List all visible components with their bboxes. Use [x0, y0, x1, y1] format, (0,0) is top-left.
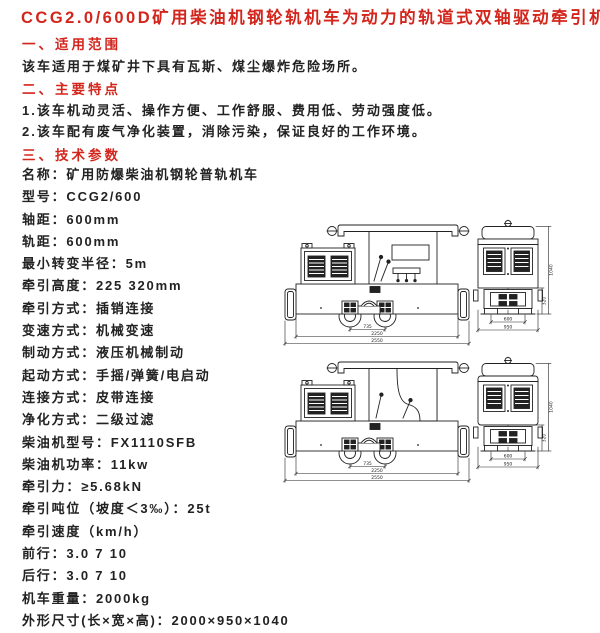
spec-list: 名称：矿用防爆柴油机钢轮普轨机车 型号：CCG2/600 轴距：600mm 轨距…	[22, 164, 290, 632]
dim-label-frame-length: 2250	[371, 468, 383, 474]
dim-label-gauge: 600	[504, 316, 513, 322]
section-heading-scope: 一、适用范围	[22, 33, 121, 53]
dim-label-height: 1040	[549, 264, 555, 276]
spec-row: 最小转变半径：5m	[22, 253, 290, 275]
side-view: 735 2250 2550	[284, 225, 471, 346]
spec-row: 起动方式：手摇/弹簧/电启动	[22, 365, 290, 387]
spec-row: 名称：矿用防爆柴油机钢轮普轨机车	[22, 164, 290, 186]
section-heading-specs: 三、技术参数	[22, 144, 121, 164]
dim-label-wheelbase: 735	[363, 324, 372, 330]
spec-row: 柴油机型号：FX1110SFB	[22, 432, 290, 454]
dim-label-width: 950	[504, 461, 513, 467]
spec-row: 牵引速度（km/h）	[22, 521, 290, 543]
dim-label-frame-length: 2250	[371, 331, 383, 337]
dim-label-coupler-height: 320	[542, 297, 548, 306]
spec-row: 牵引高度：225 320mm	[22, 275, 290, 297]
feature-item: 2.该车配有废气净化装置，消除污染，保证良好的工作环境。	[22, 121, 427, 140]
section-heading-features: 二、主要特点	[22, 78, 121, 98]
dim-label-overall-length: 2550	[371, 338, 383, 344]
spec-row: 前行：3.0 7 10	[22, 543, 290, 565]
spec-row: 牵引力：≥5.68kN	[22, 476, 290, 498]
front-view: 1040 320 600 950	[474, 357, 555, 469]
dim-label-wheelbase: 735	[363, 461, 372, 467]
spec-row: 柴油机功率：11kw	[22, 454, 290, 476]
spec-row: 净化方式：二级过滤	[22, 409, 290, 431]
spec-row: 型号：CCG2/600	[22, 186, 290, 208]
locomotive-drawing-1-svg: 735 2250 2550	[281, 217, 599, 357]
dim-label-width: 950	[504, 324, 513, 330]
locomotive-drawing-2-svg: 735 2250 2550	[281, 354, 599, 494]
locomotive-drawing-2: 735 2250 2550	[281, 354, 599, 494]
spec-row: 机车重量：2000kg	[22, 588, 290, 610]
locomotive-drawing-1: 735 2250 2550	[281, 217, 599, 357]
page-title: CCG2.0/600D矿用柴油机钢轮轨机车为动力的轨道式双轴驱动牵引机车	[21, 4, 600, 28]
dim-label-gauge: 600	[504, 453, 513, 459]
dim-label-overall-length: 2550	[371, 475, 383, 481]
spec-row: 轴距：600mm	[22, 209, 290, 231]
dim-label-height: 1040	[549, 401, 555, 413]
scope-paragraph: 该车适用于煤矿井下具有瓦斯、煤尘爆炸危险场所。	[22, 56, 367, 75]
dim-label-coupler-height: 320	[542, 434, 548, 443]
feature-item: 1.该车机动灵活、操作方便、工作舒服、费用低、劳动强度低。	[22, 100, 442, 119]
spec-row: 外形尺寸(长×宽×高)：2000×950×1040	[22, 610, 290, 632]
spec-row: 牵引吨位（坡度＜3‰）：25t	[22, 498, 290, 520]
spec-row: 变速方式：机械变速	[22, 320, 290, 342]
side-view: 735 2250 2550	[284, 362, 471, 483]
spec-row: 后行：3.0 7 10	[22, 565, 290, 587]
spec-row: 连接方式：皮带连接	[22, 387, 290, 409]
spec-row: 制动方式：液压机械制动	[22, 342, 290, 364]
front-view: 1040 320 600 950	[474, 220, 555, 332]
spec-row: 轨距：600mm	[22, 231, 290, 253]
spec-row: 牵引方式：插销连接	[22, 298, 290, 320]
